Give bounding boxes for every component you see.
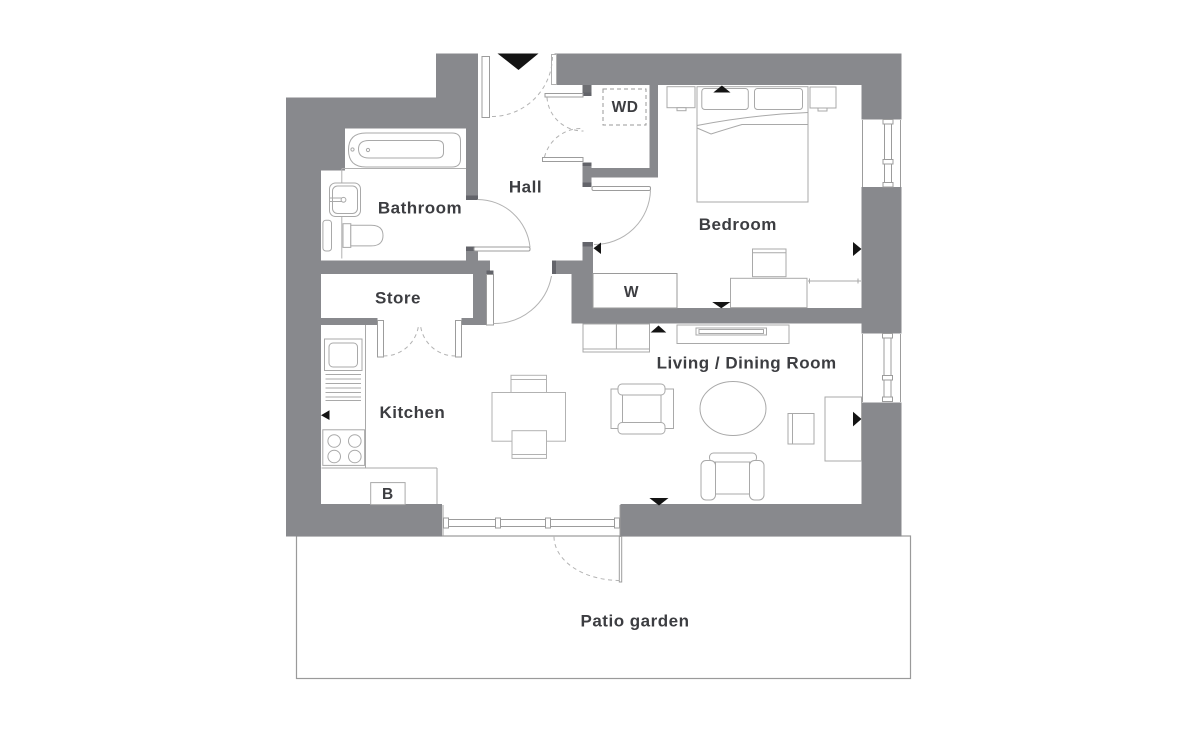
- svg-text:B: B: [382, 486, 394, 503]
- svg-text:Store: Store: [375, 288, 421, 307]
- svg-text:Living / Dining Room: Living / Dining Room: [657, 354, 837, 373]
- svg-text:Kitchen: Kitchen: [379, 403, 445, 422]
- svg-text:WD: WD: [612, 99, 639, 116]
- svg-text:Patio garden: Patio garden: [581, 612, 690, 631]
- svg-text:Bedroom: Bedroom: [699, 215, 777, 234]
- svg-text:Bathroom: Bathroom: [378, 198, 462, 217]
- svg-text:Hall: Hall: [509, 177, 542, 196]
- svg-text:W: W: [624, 284, 639, 301]
